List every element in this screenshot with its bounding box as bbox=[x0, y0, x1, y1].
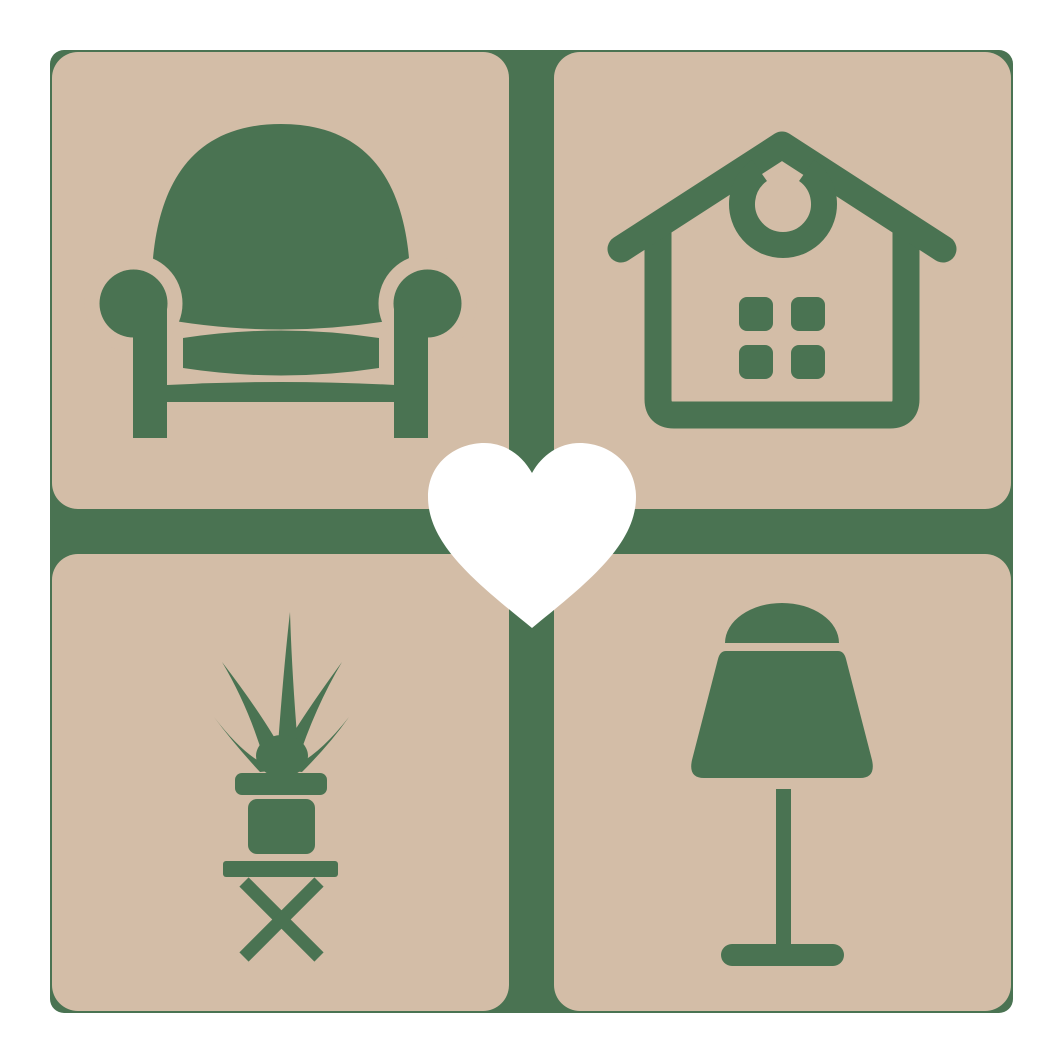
plant-pot-rim bbox=[235, 773, 327, 795]
plant-base-clump bbox=[256, 735, 308, 777]
plant-stool-top bbox=[223, 861, 338, 877]
lamp-shade bbox=[691, 651, 873, 778]
plant-pot-body bbox=[248, 799, 315, 854]
armchair-front-rail bbox=[167, 382, 395, 402]
armchair-left-leg bbox=[133, 304, 167, 438]
armchair-right-leg bbox=[394, 304, 428, 438]
armchair-seat-cushion bbox=[183, 331, 379, 376]
logo-canvas bbox=[0, 0, 1063, 1063]
tile-top-right bbox=[554, 52, 1011, 509]
logo-graphic bbox=[0, 0, 1063, 1063]
lamp-base bbox=[721, 944, 844, 966]
lamp-stem bbox=[776, 789, 791, 949]
